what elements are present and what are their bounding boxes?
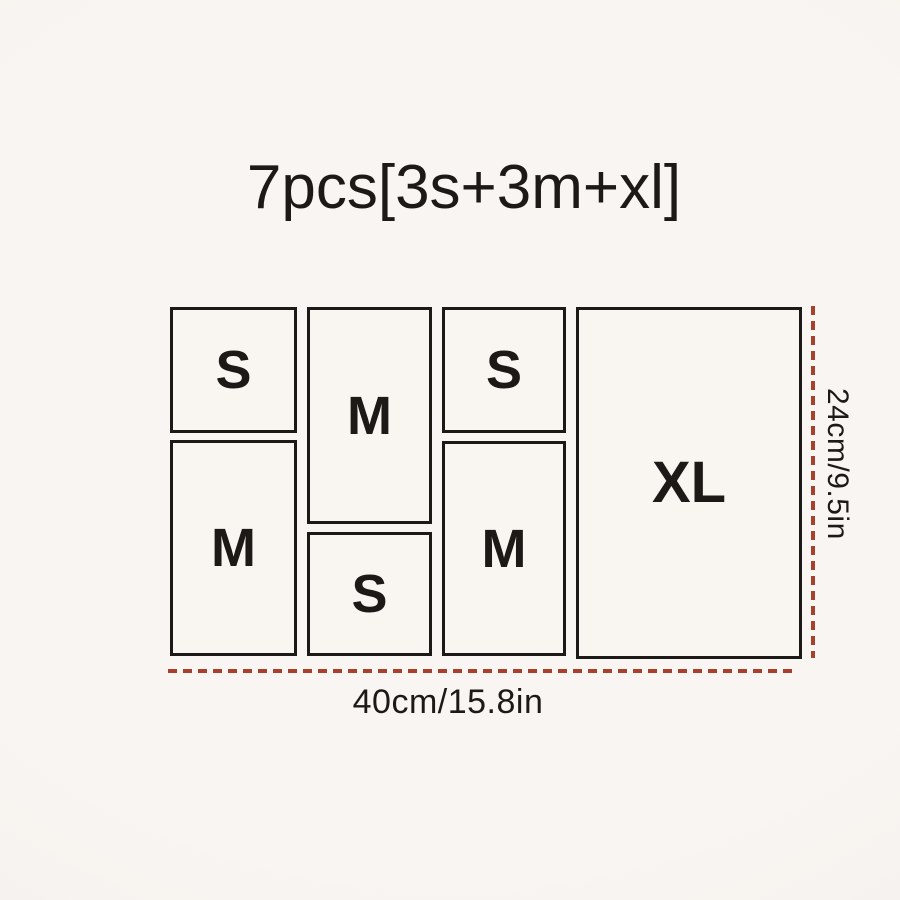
box-m-bottom-right: M <box>442 441 566 656</box>
box-s-top-left: S <box>170 307 297 433</box>
size-label: S <box>486 343 522 397</box>
box-m-bottom-left: M <box>170 440 297 656</box>
width-dimension-label: 40cm/15.8in <box>168 683 728 722</box>
size-label: M <box>482 522 527 576</box>
pack-title: 7pcs[3s+3m+xl] <box>28 148 900 228</box>
size-label: XL <box>652 454 726 512</box>
height-dimension-line <box>811 306 815 658</box>
height-dimension-label: 24cm/9.5in <box>820 388 854 540</box>
size-label: S <box>351 567 387 621</box>
size-label: M <box>347 389 392 443</box>
box-s-top-right: S <box>442 307 566 433</box>
product-pack-image: 7pcs[3s+3m+xl] S M M S S M XL 40cm/15.8i… <box>0 0 900 900</box>
width-dimension-line <box>168 669 798 673</box>
size-label: S <box>215 343 251 397</box>
box-m-top-middle: M <box>307 307 432 524</box>
box-s-bottom-middle: S <box>307 532 432 656</box>
box-xl: XL <box>576 307 802 659</box>
size-label: M <box>211 521 256 575</box>
